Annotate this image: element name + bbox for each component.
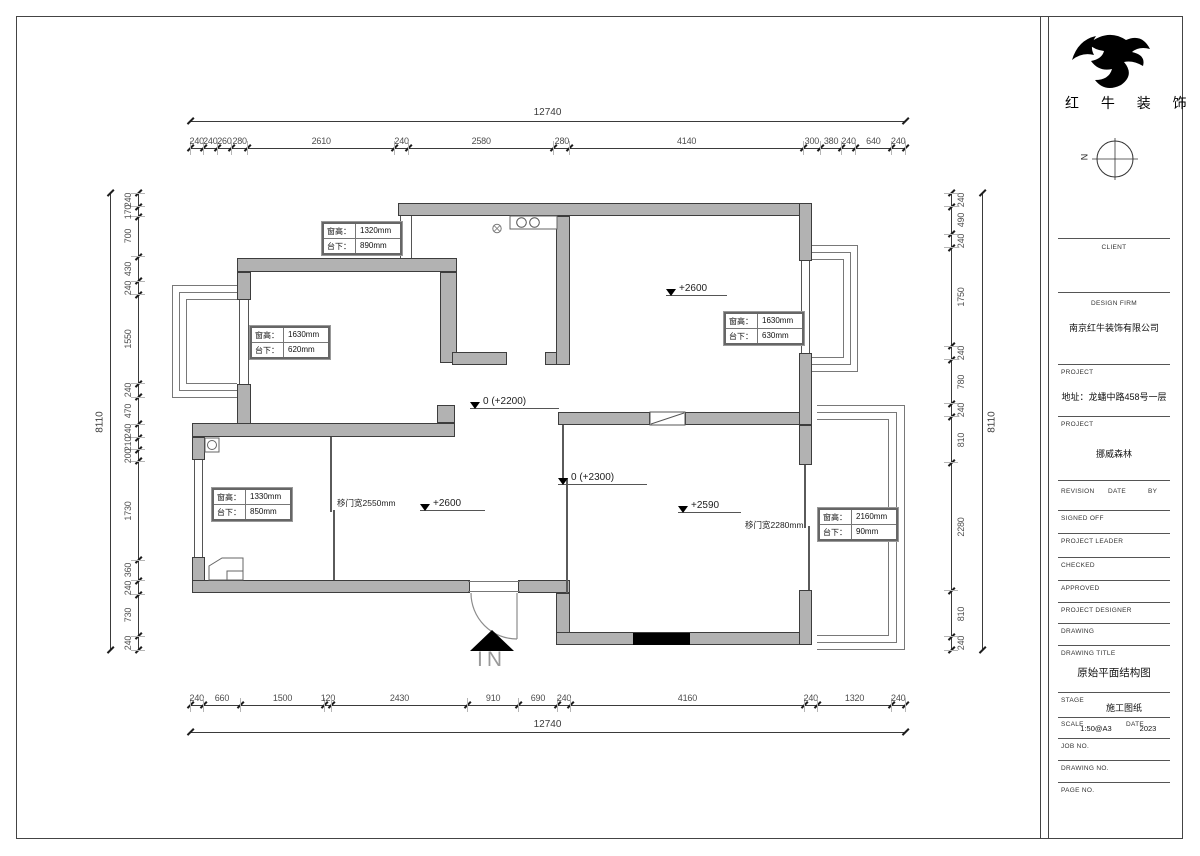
- dim-segment-label: 240: [956, 193, 966, 207]
- dim-segment-label: 2430: [390, 693, 409, 703]
- level-triangle-icon: [678, 506, 688, 513]
- dim-line: [110, 193, 111, 650]
- design-firm-label: DESIGN FIRM: [1058, 300, 1170, 307]
- window-tag-value: 1320mm: [356, 224, 400, 238]
- dim-extension: [518, 698, 519, 712]
- date-label: DATE: [1108, 488, 1126, 495]
- drawing-sheet: +26000 (+2200)0 (+2300)+2600+2590移门宽2550…: [0, 0, 1200, 856]
- dim-extension: [131, 294, 145, 295]
- sliding-door-track: [804, 465, 806, 528]
- level-triangle-icon: [470, 402, 480, 409]
- dim-segment-label: 240: [123, 636, 133, 650]
- dim-extension: [944, 650, 958, 651]
- window-tag-value: 1330mm: [246, 490, 290, 504]
- dim-total-label: 12740: [534, 107, 562, 118]
- dim-extension: [905, 698, 906, 712]
- window-tag-key: 台下：: [726, 329, 758, 343]
- dim-segment-label: 2610: [312, 136, 331, 146]
- window-tag-key: 窗高：: [324, 224, 356, 238]
- north-label: N: [1079, 154, 1089, 161]
- dim-segment-label: 810: [956, 606, 966, 620]
- window-tag-row: 窗高：1630mm: [252, 328, 328, 343]
- window-tag-value: 850mm: [246, 505, 290, 519]
- window-tag-value: 1630mm: [758, 314, 802, 328]
- project-label-2: PROJECT: [1061, 421, 1093, 428]
- drawing-no-label: DRAWING NO.: [1061, 765, 1109, 772]
- dim-extension: [944, 462, 958, 463]
- wall: [440, 272, 457, 363]
- dim-segment-label: 1500: [273, 693, 292, 703]
- dim-extension: [131, 594, 145, 595]
- dim-segment-label: 240: [891, 136, 905, 146]
- level-marker: +2600: [420, 498, 485, 511]
- window-tag-row: 台下：890mm: [324, 239, 400, 253]
- level-triangle-icon: [666, 289, 676, 296]
- dim-segment-label: 380: [824, 136, 838, 146]
- drawing-label: DRAWING: [1061, 628, 1094, 635]
- window-tag-row: 台下：90mm: [820, 525, 896, 539]
- dim-total-label: 8110: [95, 411, 106, 433]
- wall: [558, 412, 650, 425]
- scale-value: 1:50@A3: [1074, 724, 1118, 733]
- dim-segment-label: 240: [956, 636, 966, 650]
- dim-extension: [131, 383, 145, 384]
- window-glass: [194, 460, 203, 557]
- window-tag-row: 窗高：1320mm: [324, 224, 400, 239]
- dim-extension: [131, 206, 145, 207]
- level-marker: 0 (+2200): [470, 396, 559, 409]
- dim-line: [982, 193, 983, 650]
- client-label: CLIENT: [1058, 244, 1170, 251]
- sliding-door-track: [808, 526, 810, 590]
- page-no-label: PAGE NO.: [1061, 787, 1094, 794]
- dim-segment-label: 640: [866, 136, 880, 146]
- window-tag: 窗高：1330mm台下：850mm: [212, 488, 292, 521]
- dim-extension: [203, 698, 204, 712]
- bay-window-right: [812, 259, 844, 358]
- wall: [799, 590, 812, 645]
- dim-extension: [944, 247, 958, 248]
- dim-extension: [131, 650, 145, 651]
- dim-extension: [467, 698, 468, 712]
- level-triangle-icon: [420, 504, 430, 511]
- dim-extension: [944, 590, 958, 591]
- dim-extension: [240, 698, 241, 712]
- wall: [192, 423, 455, 437]
- dim-segment-label: 1750: [956, 287, 966, 306]
- checked-label: CHECKED: [1061, 562, 1095, 569]
- dim-extension: [131, 281, 145, 282]
- dim-extension: [944, 359, 958, 360]
- dim-segment-label: 470: [123, 403, 133, 417]
- dim-segment-label: 240: [841, 136, 855, 146]
- wall: [452, 352, 507, 365]
- bay-window-left: [186, 299, 237, 384]
- window-tag: 窗高：1630mm台下：630mm: [724, 312, 804, 345]
- dim-extension: [131, 636, 145, 637]
- dim-segment-label: 700: [123, 229, 133, 243]
- wall: [799, 425, 812, 465]
- stage-value: 施工图纸: [1078, 701, 1170, 714]
- dim-segment-label: 240: [956, 403, 966, 417]
- dim-segment-label: 490: [956, 213, 966, 227]
- project-label: PROJECT: [1061, 369, 1093, 376]
- window-tag-row: 窗高：1330mm: [214, 490, 290, 505]
- dim-segment-label: 240: [891, 693, 905, 703]
- dim-extension: [247, 141, 248, 155]
- dim-segment-label: 240: [123, 580, 133, 594]
- project-designer-label: PROJECT DESIGNER: [1061, 607, 1132, 614]
- window-tag-key: 台下：: [252, 343, 284, 357]
- level-triangle-icon: [558, 478, 568, 485]
- dim-line: [190, 121, 905, 122]
- title-block-divider: [1040, 16, 1041, 839]
- dim-segment-label: 280: [555, 136, 569, 146]
- window-tag-row: 台下：620mm: [252, 343, 328, 357]
- wall: [556, 216, 570, 365]
- window-tag-row: 台下：630mm: [726, 329, 802, 343]
- drawing-title-value: 原始平面结构图: [1058, 665, 1170, 680]
- dim-segment-label: 4160: [678, 693, 697, 703]
- structural-block: [633, 633, 690, 645]
- dim-line: [951, 193, 952, 650]
- dim-extension: [331, 698, 332, 712]
- dim-line: [190, 732, 905, 733]
- window-tag-key: 台下：: [820, 525, 852, 539]
- wall: [799, 203, 812, 261]
- dim-extension: [131, 256, 145, 257]
- dim-extension: [131, 216, 145, 217]
- window-tag-key: 台下：: [214, 505, 246, 519]
- job-no-label: JOB NO.: [1061, 743, 1089, 750]
- entrance-in-label: IN: [477, 648, 506, 672]
- dim-segment-label: 240: [190, 136, 204, 146]
- wall: [192, 580, 470, 593]
- dim-segment-label: 430: [123, 262, 133, 276]
- dim-segment-label: 2580: [472, 136, 491, 146]
- sliding-door-label: 移门宽2280mm: [745, 519, 804, 531]
- sliding-door-track: [330, 437, 332, 512]
- dim-segment-label: 910: [486, 693, 500, 703]
- dim-segment-label: 240: [394, 136, 408, 146]
- sliding-door-label: 移门宽2550mm: [337, 497, 396, 509]
- dim-segment-label: 260: [217, 136, 231, 146]
- window-tag: 窗高：1320mm台下：890mm: [322, 222, 402, 255]
- dim-segment-label: 240: [123, 383, 133, 397]
- window-tag-row: 台下：850mm: [214, 505, 290, 519]
- window-tag-key: 台下：: [324, 239, 356, 253]
- window-tag-value: 620mm: [284, 343, 328, 357]
- dim-segment-label: 240: [123, 281, 133, 295]
- dim-segment-label: 240: [804, 693, 818, 703]
- dim-segment-label: 240: [557, 693, 571, 703]
- design-firm-value: 南京红牛装饰有限公司: [1058, 321, 1170, 334]
- wall: [437, 405, 455, 423]
- window-tag-key: 窗高：: [726, 314, 758, 328]
- dim-segment-label: 360: [123, 563, 133, 577]
- revision-label: REVISION: [1061, 488, 1094, 495]
- window-tag-value: 90mm: [852, 525, 896, 539]
- level-marker: 0 (+2300): [558, 472, 647, 485]
- wall: [685, 412, 812, 425]
- dim-segment-label: 690: [531, 693, 545, 703]
- window-tag-value: 1630mm: [284, 328, 328, 342]
- drawing-title-label: DRAWING TITLE: [1061, 650, 1115, 657]
- dim-extension: [131, 461, 145, 462]
- wall: [237, 258, 457, 272]
- dim-line: [190, 705, 905, 706]
- dim-extension: [408, 141, 409, 155]
- dim-segment-label: 810: [956, 433, 966, 447]
- dim-extension: [131, 193, 145, 194]
- window-tag-key: 窗高：: [214, 490, 246, 504]
- dim-segment-label: 660: [215, 693, 229, 703]
- dim-extension: [905, 141, 906, 155]
- signed-off-label: SIGNED OFF: [1061, 515, 1104, 522]
- sliding-door-track: [333, 510, 335, 580]
- approved-label: APPROVED: [1061, 585, 1100, 592]
- dim-extension: [817, 698, 818, 712]
- dim-segment-label: 780: [956, 374, 966, 388]
- wall: [799, 353, 812, 425]
- wall: [518, 580, 570, 593]
- window-tag: 窗高：1630mm台下：620mm: [250, 326, 330, 359]
- dim-extension: [569, 141, 570, 155]
- dim-extension: [131, 437, 145, 438]
- dim-segment-label: 240: [203, 136, 217, 146]
- dim-segment-label: 1730: [123, 501, 133, 520]
- sliding-door-track: [566, 478, 568, 593]
- window-glass: [239, 300, 249, 384]
- window-tag-value: 2160mm: [852, 510, 896, 524]
- dim-total-label: 8110: [987, 411, 998, 433]
- dim-segment-label: 240: [190, 693, 204, 703]
- dim-segment-label: 730: [123, 608, 133, 622]
- dim-total-label: 12740: [534, 719, 562, 730]
- dim-line: [190, 148, 905, 149]
- dim-extension: [131, 449, 145, 450]
- window-tag: 窗高：2160mm台下：90mm: [818, 508, 898, 541]
- dim-segment-label: 1320: [845, 693, 864, 703]
- wall: [398, 203, 812, 216]
- dim-segment-label: 2280: [956, 517, 966, 536]
- dim-extension: [131, 580, 145, 581]
- dim-segment-label: 280: [232, 136, 246, 146]
- brand-name: 红 牛 装 饰: [1056, 93, 1174, 113]
- date-value: 2023: [1128, 724, 1168, 733]
- door-threshold-line: [468, 591, 520, 592]
- wall: [192, 437, 205, 460]
- dim-extension: [820, 141, 821, 155]
- window-tag-key: 窗高：: [820, 510, 852, 524]
- window-tag-row: 窗高：1630mm: [726, 314, 802, 329]
- dim-extension: [855, 141, 856, 155]
- dim-extension: [131, 397, 145, 398]
- level-marker: +2600: [666, 283, 727, 296]
- door-threshold-line: [468, 581, 520, 582]
- wall: [237, 272, 251, 300]
- project-leader-label: PROJECT LEADER: [1061, 538, 1123, 545]
- dim-segment-label: 240: [956, 234, 966, 248]
- by-label: BY: [1148, 488, 1157, 495]
- project-name-value: 挪威森林: [1058, 447, 1170, 460]
- dim-segment-label: 4140: [677, 136, 696, 146]
- window-tag-value: 890mm: [356, 239, 400, 253]
- dim-segment-label: 300: [805, 136, 819, 146]
- level-marker: +2590: [678, 500, 741, 513]
- window-tag-value: 630mm: [758, 329, 802, 343]
- dim-segment-label: 240: [956, 346, 966, 360]
- dim-extension: [131, 424, 145, 425]
- dim-extension: [944, 206, 958, 207]
- title-block-divider-inner: [1048, 16, 1049, 839]
- window-tag-key: 窗高：: [252, 328, 284, 342]
- window-tag-row: 窗高：2160mm: [820, 510, 896, 525]
- dim-extension: [570, 698, 571, 712]
- dim-extension: [944, 416, 958, 417]
- dim-extension: [131, 560, 145, 561]
- dim-segment-label: 1550: [123, 330, 133, 349]
- address-value: 地址：龙蟠中路458号一层: [1058, 390, 1170, 403]
